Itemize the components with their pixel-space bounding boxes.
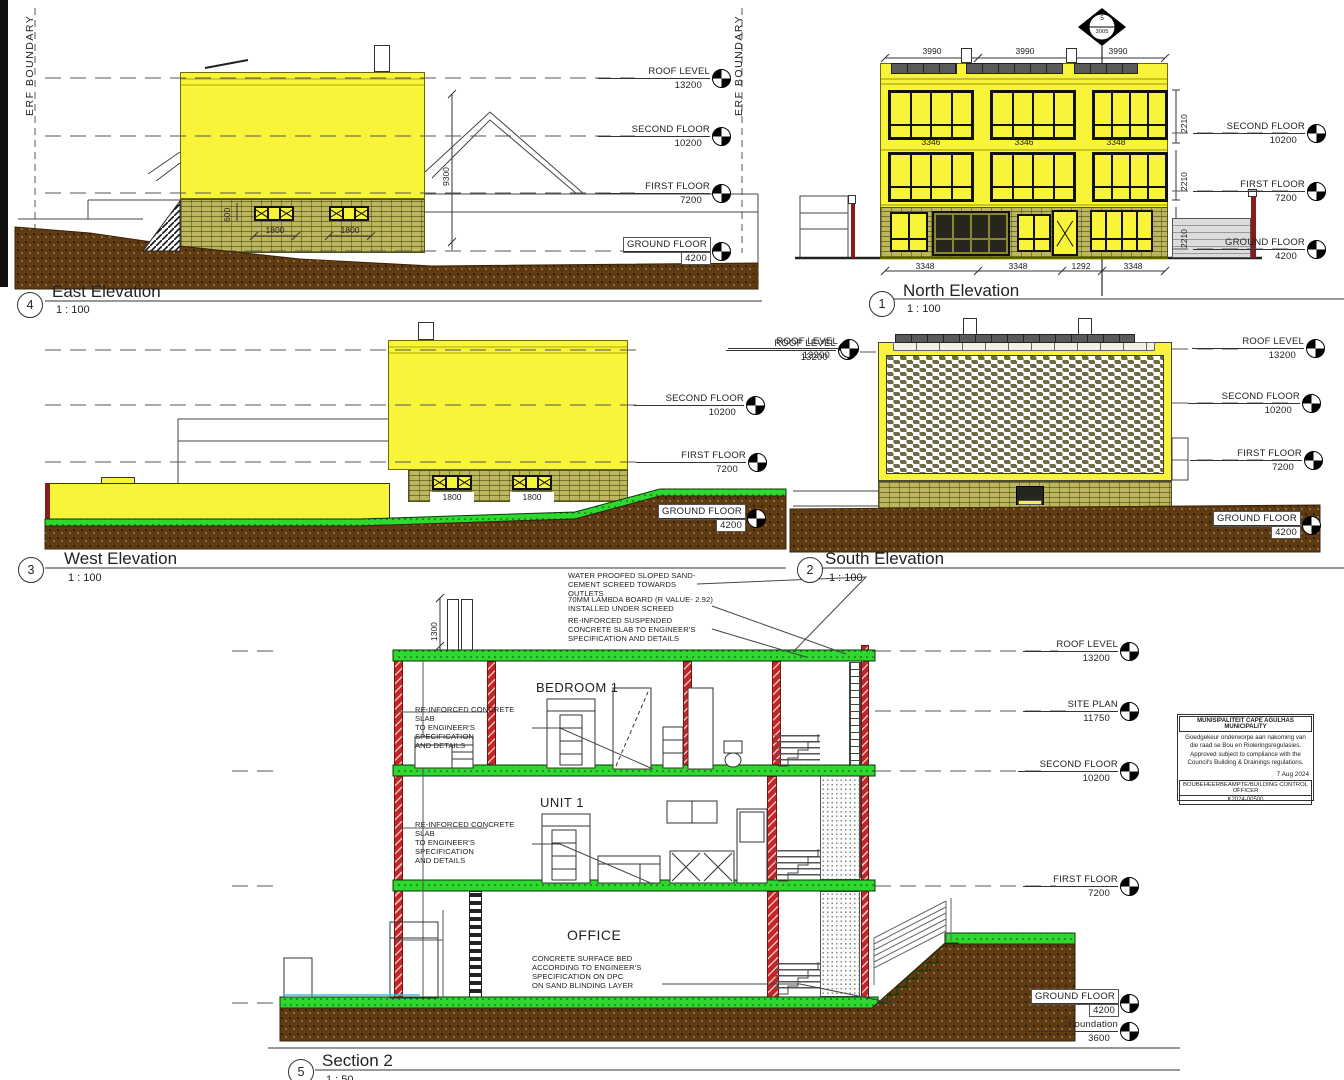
west-parapet [101, 477, 135, 484]
level-second: SECOND FLOOR10200 [1018, 758, 1118, 784]
level-benchmark-icon [1120, 1022, 1139, 1041]
glazed-entrance-door [932, 211, 1010, 256]
column-stub [860, 1008, 869, 1022]
level-ground: GROUND FLOOR4200 [1193, 236, 1305, 262]
level-second: SECOND FLOOR10200 [1188, 390, 1300, 416]
panel-number: 4 [17, 292, 43, 318]
section-marker-sheet: 3005 [1091, 29, 1113, 35]
dimension: 3348 [899, 261, 951, 271]
stamp-body: Goedgekeur onderworpe aan nakoming van d… [1179, 732, 1312, 767]
level-benchmark-icon [1120, 702, 1139, 721]
level-benchmark-icon [748, 453, 767, 472]
solar-panels [895, 334, 1135, 343]
panel-number: 3 [18, 557, 44, 583]
panel-scale: 1 : 100 [829, 572, 863, 584]
level-benchmark-icon [840, 339, 859, 358]
sheet-edge [0, 0, 8, 287]
entrance-door [1052, 210, 1078, 256]
panel-title: East Elevation [52, 282, 161, 302]
level-ground: GROUND FLOOR4200 [1018, 990, 1118, 1016]
concrete-column [394, 650, 403, 1000]
panel-scale: 1 : 50 [326, 1074, 354, 1080]
architectural-drawing-sheet: ERF BOUNDARY ERF BOUNDARY ROOF LEVEL1320… [0, 0, 1344, 1080]
level-benchmark-icon [1307, 240, 1326, 259]
panel-number: 5 [288, 1059, 314, 1080]
dimension: 1800 [430, 492, 474, 502]
solar-panels [891, 63, 957, 74]
dimension: 9300 [441, 152, 451, 186]
level-benchmark-icon [1306, 339, 1325, 358]
window [254, 206, 294, 221]
annotation-slab-lower: RE-INFORCED CONCRETE SLAB TO ENGINEER'S … [415, 820, 535, 866]
annotation-slab-upper: RE-INFORCED CONCRETE SLAB TO ENGINEER'S … [415, 705, 535, 751]
level-benchmark-icon [1302, 394, 1321, 413]
panel-scale: 1 : 100 [56, 304, 90, 316]
pole-cap [848, 195, 856, 204]
level-ground: GROUND FLOOR4200 [635, 505, 745, 531]
erf-boundary-label: ERF BOUNDARY [733, 12, 745, 116]
window [990, 152, 1076, 202]
south-chimney [1078, 318, 1092, 335]
window [1092, 90, 1168, 140]
level-benchmark-icon [1302, 516, 1321, 535]
concrete-stair-core [820, 768, 860, 880]
level-first: FIRST FLOOR7200 [1193, 178, 1305, 204]
stamp-officer: BOUBEHEERBEAMPTE/BUILDING CONTROL OFFICE… [1179, 780, 1312, 796]
boundary-pole [851, 204, 855, 258]
level-roof: ROOF LEVEL13200 [598, 65, 710, 91]
east-ground-floor-brick [180, 199, 425, 253]
level-first: FIRST FLOOR7200 [598, 180, 710, 206]
dimension: 2210 [1179, 216, 1189, 248]
level-second: SECOND FLOOR10200 [634, 392, 744, 418]
level-roof: ROOF LEVEL13200 [1023, 638, 1118, 664]
level-benchmark-icon [1304, 451, 1323, 470]
level-benchmark-icon [712, 69, 731, 88]
level-benchmark-icon [1307, 124, 1326, 143]
west-wall-end [45, 483, 50, 520]
window [888, 152, 974, 202]
level-benchmark-icon [746, 396, 765, 415]
level-benchmark-icon [1120, 762, 1139, 781]
panel-number: 2 [797, 557, 823, 583]
panel-title: West Elevation [64, 549, 177, 569]
concrete-stair-core [820, 891, 860, 997]
west-low-building [45, 483, 390, 520]
level-second: SECOND FLOOR10200 [598, 123, 710, 149]
level-roof-left: ROOF LEVEL13200 [728, 335, 838, 361]
dimension: 3348 [1108, 261, 1158, 271]
room-label-unit1: UNIT 1 [540, 795, 584, 810]
window [1017, 214, 1051, 252]
masonry-column [469, 891, 482, 998]
window [990, 90, 1076, 140]
level-benchmark-icon [1120, 877, 1139, 896]
dimension: 3990 [1094, 46, 1142, 56]
stamp-title: MUNISIPALITEIT CAPE AGULHAS MUNICIPALITY [1179, 716, 1312, 732]
room-label-bedroom1: BEDROOM 1 [536, 680, 619, 695]
section-chimney-stack [461, 599, 473, 651]
dimension: 600 [222, 202, 232, 222]
erf-boundary-label: ERF BOUNDARY [24, 8, 36, 116]
annotation-lambda-board: 70MM LAMBDA BOARD (R VALUE- 2.92) INSTAL… [568, 595, 718, 613]
window [432, 475, 472, 490]
east-building-face [180, 72, 425, 199]
column-stub [472, 1008, 481, 1022]
north-chimney [961, 48, 972, 63]
dimension: 2210 [1179, 159, 1189, 191]
panel-title: South Elevation [825, 549, 944, 569]
panel-scale: 1 : 100 [907, 303, 941, 315]
panel-title: Section 2 [322, 1051, 393, 1071]
annotation-suspended-slab: RE-INFORCED SUSPENDED CONCRETE SLAB TO E… [568, 616, 708, 643]
level-second: SECOND FLOOR10200 [1193, 120, 1305, 146]
section-marker-number: 5 [1094, 15, 1110, 22]
south-base-sill [1018, 500, 1042, 505]
stamp-reference: K2024-00500 [1179, 796, 1312, 805]
level-ground: GROUND FLOOR4200 [598, 238, 710, 264]
west-building-face [388, 340, 628, 470]
west-chimney [418, 322, 434, 340]
level-benchmark-icon [712, 127, 731, 146]
dimension: 2210 [1179, 101, 1189, 133]
level-first: FIRST FLOOR7200 [1023, 873, 1118, 899]
solar-panels [1074, 63, 1138, 74]
window [1092, 152, 1168, 202]
stair-balustrade [775, 963, 820, 993]
south-brick-screen [886, 355, 1164, 474]
dimension: 3348 [1090, 137, 1142, 147]
level-benchmark-icon [1307, 182, 1326, 201]
panel-title: North Elevation [903, 281, 1019, 301]
concrete-column [683, 661, 692, 766]
dimension: 3346 [998, 137, 1050, 147]
dimension: 1292 [1060, 261, 1102, 271]
level-first: FIRST FLOOR7200 [636, 449, 746, 475]
concrete-wall [861, 645, 869, 1011]
level-ground: GROUND FLOOR4200 [1188, 512, 1300, 538]
stair-balustrade [775, 850, 820, 881]
level-benchmark-icon [712, 242, 731, 261]
window [888, 90, 974, 140]
level-foundation: Foundation3600 [1028, 1018, 1118, 1044]
window [512, 475, 552, 490]
dimension: 1800 [329, 225, 371, 235]
room-label-office: OFFICE [567, 927, 621, 943]
municipal-approval-stamp: MUNISIPALITEIT CAPE AGULHAS MUNICIPALITY… [1177, 714, 1314, 801]
east-chimney [374, 45, 390, 72]
dimension: 3348 [992, 261, 1044, 271]
window [1090, 210, 1153, 252]
level-roof: ROOF LEVEL13200 [1192, 335, 1304, 361]
solar-panels [966, 63, 1063, 74]
window [890, 212, 928, 252]
stair-balustrade [775, 735, 820, 766]
section-chimney-stack [447, 599, 459, 651]
dimension: 3990 [1001, 46, 1049, 56]
panel-scale: 1 : 100 [68, 572, 102, 584]
level-benchmark-icon [1120, 642, 1139, 661]
level-benchmark-icon [712, 184, 731, 203]
dimension: 3990 [908, 46, 956, 56]
level-first: FIRST FLOOR7200 [1190, 447, 1302, 473]
annotation-surface-bed: CONCRETE SURFACE BED ACCORDING TO ENGINE… [532, 954, 644, 990]
north-chimney [1066, 48, 1077, 63]
level-benchmark-icon [747, 509, 766, 528]
south-roof-edge [893, 342, 1155, 351]
stamp-date: 7 Aug 2024 [1179, 767, 1312, 780]
level-benchmark-icon [1120, 994, 1139, 1013]
level-site-plan: SITE PLAN11750 [1023, 698, 1118, 724]
window [329, 206, 369, 221]
south-chimney [963, 318, 977, 335]
dimension: 1800 [510, 492, 554, 502]
dimension: 3346 [905, 137, 957, 147]
dimension: 1800 [254, 225, 296, 235]
dimension: 1300 [429, 613, 439, 641]
panel-number: 1 [869, 291, 895, 317]
